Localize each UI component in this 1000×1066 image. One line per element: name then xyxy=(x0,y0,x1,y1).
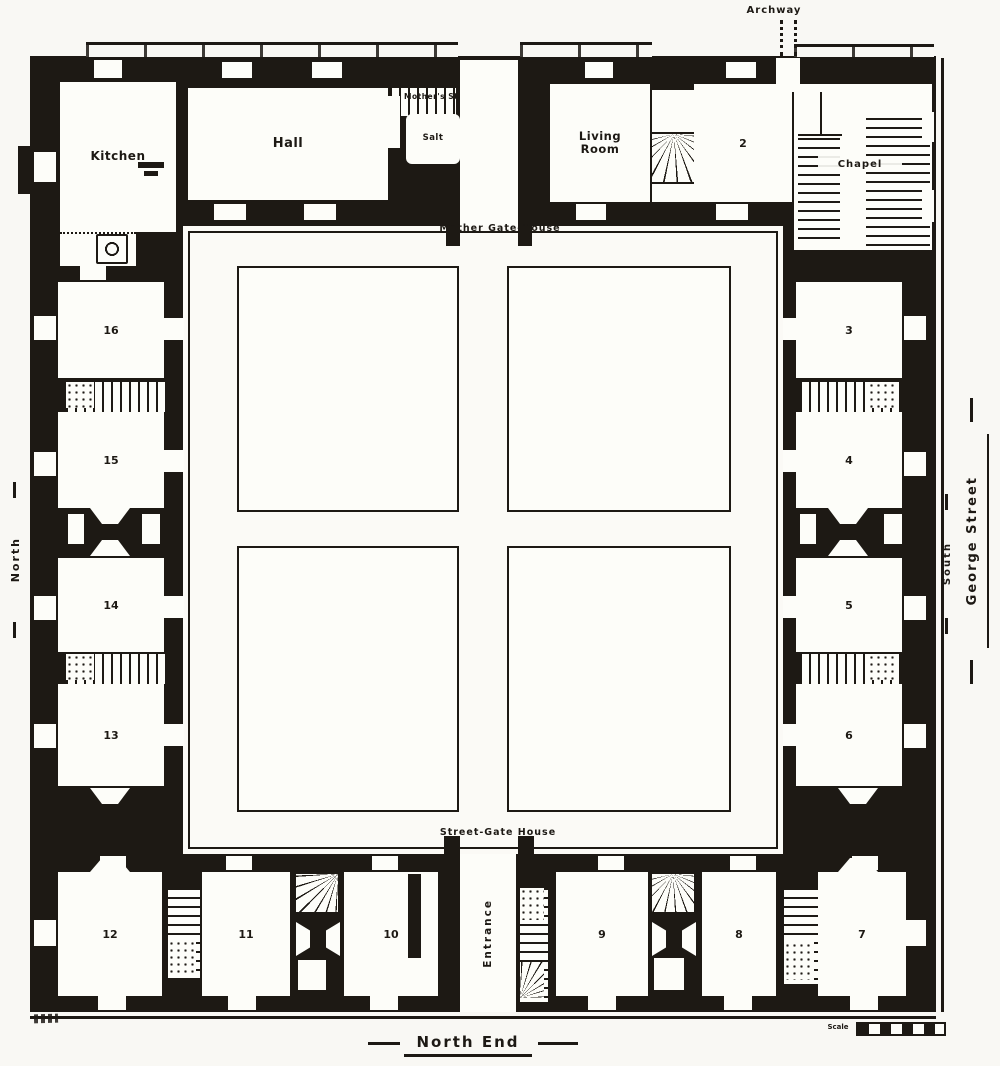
window-opening xyxy=(783,596,797,618)
george-street-underline xyxy=(987,434,989,648)
salt-lobby: Salt xyxy=(406,114,460,164)
window-opening xyxy=(585,62,613,78)
window-opening xyxy=(922,190,934,222)
stair-dotted xyxy=(66,382,94,408)
archway-dotted-line xyxy=(780,20,783,56)
ground-line-bottom xyxy=(30,1016,936,1019)
window-opening xyxy=(904,596,926,620)
north-end-label: North End xyxy=(402,1032,534,1052)
gatehouse-stub xyxy=(518,226,532,246)
window-opening xyxy=(922,112,934,142)
stair-dotted xyxy=(520,888,544,920)
room-7-label: 7 xyxy=(858,928,866,941)
outer-wall-strip xyxy=(794,44,934,60)
room-16: 16 xyxy=(58,282,164,378)
window-opening xyxy=(576,204,606,220)
window-opening xyxy=(304,204,336,220)
window-opening xyxy=(730,856,756,870)
scale-bar xyxy=(856,1022,946,1036)
entrance-label: Entrance xyxy=(482,899,494,968)
dash xyxy=(368,1042,400,1045)
scale-label: Scale xyxy=(822,1021,854,1032)
closet xyxy=(298,960,326,990)
window-opening xyxy=(904,316,926,340)
dash xyxy=(13,622,16,638)
room-15: 15 xyxy=(58,412,164,508)
room-2: 2 xyxy=(694,84,792,202)
garden-plot-se xyxy=(507,546,731,812)
room-12: 12 xyxy=(58,872,162,996)
window-opening xyxy=(588,996,616,1010)
winder-stair xyxy=(652,874,694,912)
room-living-label: Living Room xyxy=(579,130,621,156)
stair-dotted xyxy=(66,654,94,680)
window-opening xyxy=(34,724,56,748)
street-gatehouse-label: Street-Gate House xyxy=(398,824,598,840)
george-street-label: George Street xyxy=(956,426,988,656)
window-opening xyxy=(164,318,184,340)
window-opening xyxy=(226,856,252,870)
sink xyxy=(96,234,128,264)
room-kitchen: Kitchen xyxy=(60,82,176,232)
hatch-mark xyxy=(138,162,164,168)
room-10-label: 10 xyxy=(383,928,398,941)
window-opening xyxy=(94,60,122,78)
window-opening xyxy=(370,996,398,1010)
seat-nook xyxy=(374,96,400,148)
archway-dotted-line xyxy=(794,20,797,56)
room-14-label: 14 xyxy=(103,599,118,612)
room-16-label: 16 xyxy=(103,324,118,337)
archway-label: Archway xyxy=(724,2,824,18)
room-2-label: 2 xyxy=(739,137,747,150)
window-opening xyxy=(372,856,398,870)
stair-dotted xyxy=(868,382,896,408)
outer-wall-strip xyxy=(86,42,458,60)
room-living: Living Room xyxy=(550,84,650,202)
window-opening xyxy=(228,996,256,1010)
winder-stair xyxy=(520,962,544,998)
window-opening xyxy=(852,856,878,870)
window-opening xyxy=(164,724,184,746)
window-opening xyxy=(164,596,184,618)
chapel-label: Chapel xyxy=(818,156,902,172)
window-opening xyxy=(783,724,797,746)
window-opening xyxy=(80,264,106,280)
garden-plot-nw xyxy=(237,266,459,512)
window-opening xyxy=(34,316,56,340)
window-opening xyxy=(783,450,797,472)
winder-stair xyxy=(296,874,338,912)
room-11-label: 11 xyxy=(238,928,253,941)
window-opening xyxy=(904,920,926,946)
window-opening xyxy=(850,996,878,1010)
window-opening xyxy=(34,152,56,182)
room-6-label: 6 xyxy=(845,729,853,742)
winder-stair xyxy=(652,134,696,182)
window-opening xyxy=(904,452,926,476)
room-4: 4 xyxy=(796,412,902,508)
dash xyxy=(13,482,16,498)
outer-wall-strip xyxy=(520,42,652,60)
window-opening xyxy=(716,204,748,220)
room-hall: Hall xyxy=(188,88,388,200)
chapel-lobby-wall xyxy=(798,134,842,136)
chapel-pews-right xyxy=(866,118,930,246)
closet xyxy=(652,90,696,132)
floor-plan: Kitchen Hall Mother's Stairs Salt Mother… xyxy=(0,0,1000,1066)
closet xyxy=(654,958,684,990)
room-3-label: 3 xyxy=(845,324,853,337)
buttress xyxy=(18,146,32,194)
window-opening xyxy=(726,62,756,78)
window-opening xyxy=(222,62,252,78)
room-12-label: 12 xyxy=(102,928,117,941)
north-end-underline xyxy=(404,1054,532,1057)
room-13-label: 13 xyxy=(103,729,118,742)
room-3: 3 xyxy=(796,282,902,378)
window-opening xyxy=(904,724,926,748)
room-5: 5 xyxy=(796,558,902,652)
room-14: 14 xyxy=(58,558,164,652)
dash xyxy=(970,398,973,422)
room-8-label: 8 xyxy=(735,928,743,941)
room-4-label: 4 xyxy=(845,454,853,467)
entrance-passage: Entrance xyxy=(460,854,516,1012)
closet xyxy=(884,514,902,544)
window-opening xyxy=(100,856,126,870)
dash xyxy=(970,660,973,684)
room-15-label: 15 xyxy=(103,454,118,467)
stair-dotted xyxy=(168,940,196,976)
room-9: 9 xyxy=(556,872,648,996)
window-opening xyxy=(98,996,126,1010)
room-11: 11 xyxy=(202,872,290,996)
window-opening xyxy=(34,920,56,946)
window-opening xyxy=(214,204,246,220)
room-13: 13 xyxy=(58,684,164,786)
north-side-label: North xyxy=(0,500,30,620)
window-opening xyxy=(598,856,624,870)
room-5-label: 5 xyxy=(845,599,853,612)
room-9-label: 9 xyxy=(598,928,606,941)
room-10: 10 xyxy=(344,872,438,996)
dash xyxy=(945,618,948,634)
mother-gatehouse-passage xyxy=(460,60,518,226)
engravers-mark xyxy=(34,1014,58,1024)
window-opening xyxy=(312,62,342,78)
room-6: 6 xyxy=(796,684,902,786)
window-opening xyxy=(34,452,56,476)
gatehouse-stub xyxy=(446,226,460,246)
hatch-mark xyxy=(144,171,158,176)
gatehouse-stub xyxy=(444,836,460,854)
dash xyxy=(945,494,948,510)
window-opening xyxy=(164,450,184,472)
stair-dotted xyxy=(868,654,896,680)
room-hall-label: Hall xyxy=(273,137,304,152)
room-7: 7 xyxy=(818,872,906,996)
closet xyxy=(68,514,84,544)
garden-plot-sw xyxy=(237,546,459,812)
window-opening xyxy=(724,996,752,1010)
closet xyxy=(142,514,160,544)
chapel-lobby-wall xyxy=(820,92,822,136)
window-opening xyxy=(34,596,56,620)
garden-plot-ne xyxy=(507,266,731,512)
closet xyxy=(652,184,696,202)
mother-gatehouse-label: Mother Gate-House xyxy=(400,220,600,236)
stair-dotted xyxy=(784,942,814,980)
room-8: 8 xyxy=(702,872,776,996)
window-opening xyxy=(783,318,797,340)
chapel-pews-left xyxy=(798,138,840,246)
closet xyxy=(800,514,816,544)
salt-label: Salt xyxy=(423,134,444,144)
gatehouse-stub xyxy=(518,836,534,854)
dash xyxy=(538,1042,578,1045)
partition-wall xyxy=(408,874,421,958)
